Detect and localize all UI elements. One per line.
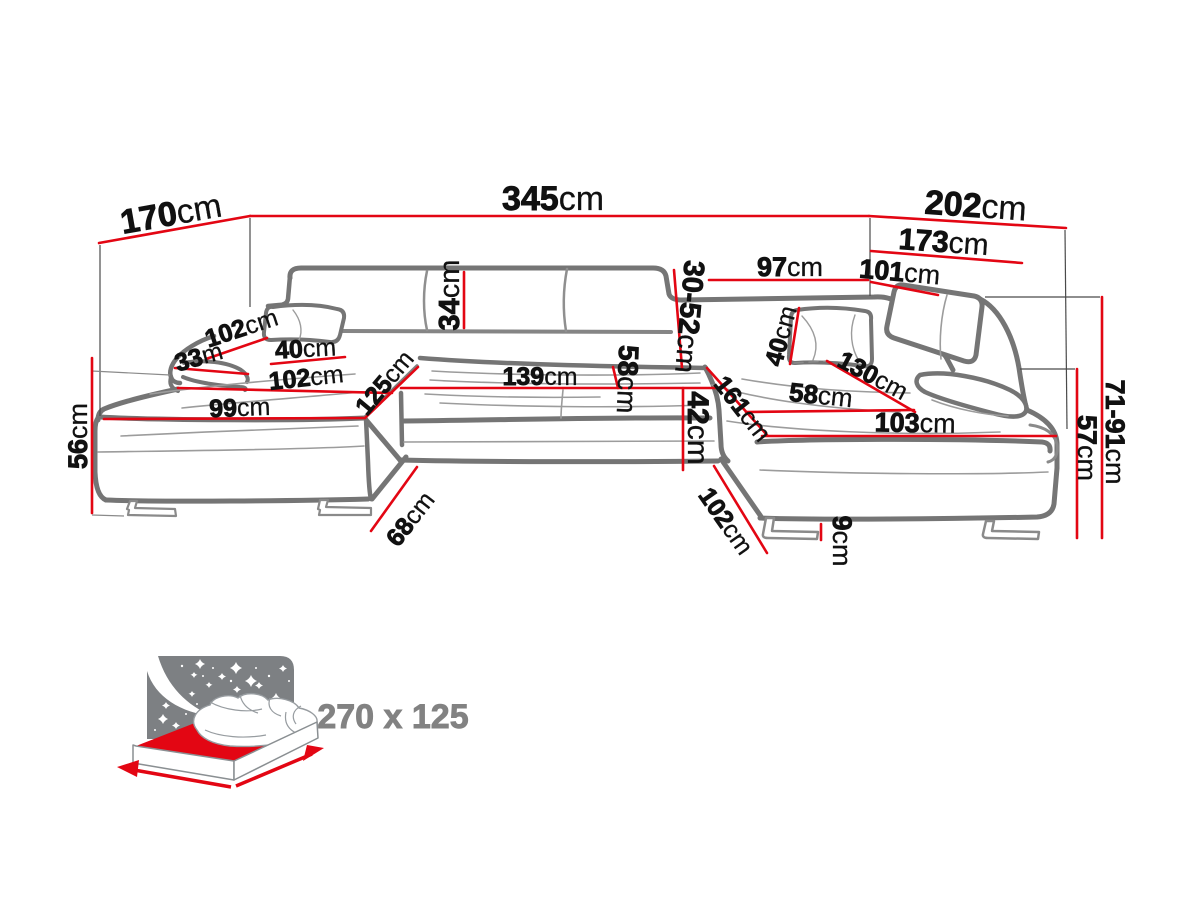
svg-text:173cm: 173cm <box>898 223 990 262</box>
svg-text:345cm: 345cm <box>502 180 604 218</box>
svg-text:103cm: 103cm <box>874 407 956 438</box>
svg-text:99cm: 99cm <box>209 393 271 423</box>
svg-text:58cm: 58cm <box>611 345 644 415</box>
svg-text:9cm: 9cm <box>827 515 857 566</box>
svg-text:97cm: 97cm <box>757 252 823 282</box>
svg-text:42cm: 42cm <box>681 391 714 464</box>
svg-text:56cm: 56cm <box>63 403 93 469</box>
svg-text:202cm: 202cm <box>924 184 1028 229</box>
svg-text:34cm: 34cm <box>434 260 466 331</box>
svg-text:139cm: 139cm <box>502 363 577 391</box>
svg-text:71-91cm: 71-91cm <box>1100 379 1130 484</box>
svg-text:40cm: 40cm <box>274 333 337 364</box>
svg-text:57cm: 57cm <box>1072 415 1102 481</box>
svg-text:270 x 125: 270 x 125 <box>317 698 468 736</box>
